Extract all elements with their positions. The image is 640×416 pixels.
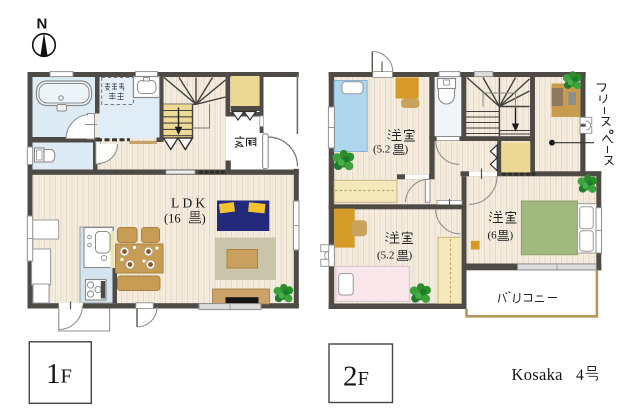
svg-text:): ) [510,230,514,242]
svg-text:N: N [37,16,48,33]
svg-text:(5.2: (5.2 [373,144,390,156]
svg-text:4: 4 [576,367,584,384]
svg-text:): ) [409,250,413,262]
svg-text:): ) [202,212,206,226]
svg-text:Kosaka: Kosaka [512,365,564,384]
svg-text:(5.2: (5.2 [377,250,394,262]
svg-text:(6: (6 [488,230,498,242]
svg-text:LDK: LDK [171,196,208,211]
svg-text:(16: (16 [164,212,181,226]
svg-text:): ) [405,144,409,156]
